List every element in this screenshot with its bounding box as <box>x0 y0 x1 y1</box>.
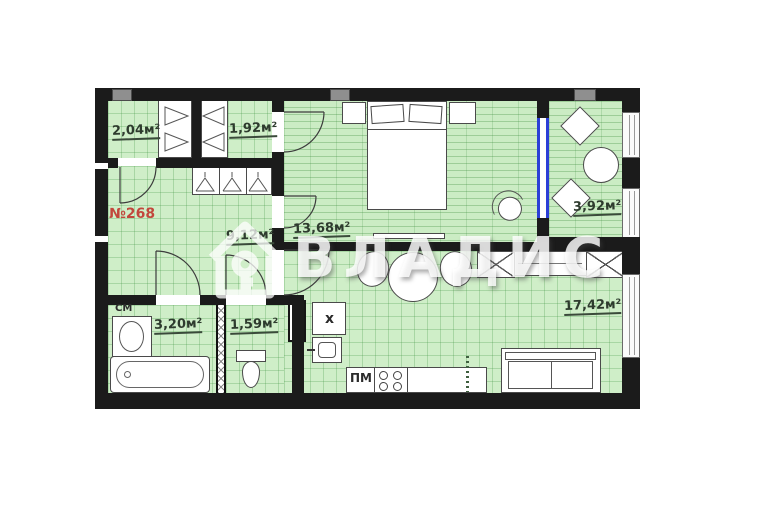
watermark-text: ВЛАДИС <box>293 226 611 291</box>
apartment-number: №268 <box>109 206 155 222</box>
washing-machine-label: СМ <box>115 303 132 314</box>
area-label-storage-a: 2,04м² <box>112 123 161 141</box>
door-arc-storage-a <box>120 167 156 203</box>
area-label-balcony: 3,92м² <box>573 199 622 217</box>
hanger-icon <box>249 172 267 191</box>
area-label-living-kitchen: 17,42м² <box>564 298 622 316</box>
hanger-icon <box>223 172 241 191</box>
area-label-storage-b: 1,92м² <box>229 121 278 139</box>
watermark-house-key-icon <box>200 212 290 302</box>
area-label-bathroom: 3,20м² <box>154 317 203 335</box>
hanger-icon <box>196 172 214 191</box>
shelf-bracket-icon <box>203 107 224 125</box>
door-arc-bathroom <box>156 251 200 295</box>
dishwasher-label: ПМ <box>350 371 372 385</box>
floorplan-canvas: х <box>0 0 770 507</box>
door-arc-storage-b-bedroom <box>284 112 324 152</box>
shelf-bracket-icon <box>203 133 224 151</box>
area-label-wc: 1,59м² <box>230 317 279 335</box>
shelf-bracket-icon <box>165 133 188 151</box>
shelf-bracket-icon <box>165 107 188 125</box>
